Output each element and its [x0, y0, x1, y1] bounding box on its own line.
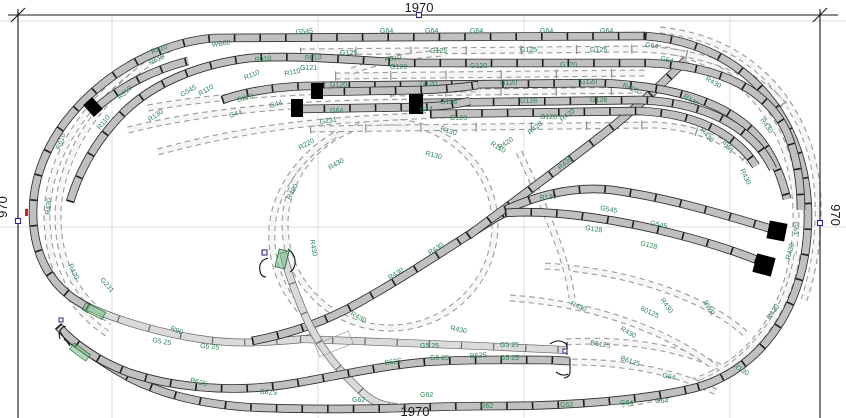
- svg-text:G128: G128: [585, 225, 603, 234]
- svg-text:G64: G64: [655, 398, 668, 405]
- svg-text:G120: G120: [500, 80, 517, 87]
- svg-text:G5 25: G5 25: [500, 342, 519, 349]
- svg-text:G125: G125: [340, 50, 357, 57]
- svg-text:G125: G125: [430, 48, 447, 55]
- svg-text:G128: G128: [640, 240, 658, 251]
- svg-text:G545: G545: [600, 205, 618, 215]
- svg-text:R430: R430: [308, 239, 318, 257]
- svg-text:G120: G120: [330, 82, 347, 89]
- svg-text:G545: G545: [296, 28, 314, 36]
- svg-text:G121: G121: [300, 65, 317, 72]
- svg-text:G128: G128: [590, 97, 607, 104]
- svg-text:G125: G125: [590, 47, 607, 54]
- svg-text:R130: R130: [424, 150, 442, 161]
- svg-text:G120: G120: [580, 79, 597, 86]
- svg-text:970: 970: [0, 196, 10, 218]
- svg-text:G64: G64: [470, 28, 483, 35]
- svg-text:B62S: B62S: [260, 389, 278, 397]
- svg-text:B62S: B62S: [470, 352, 488, 360]
- svg-text:1970: 1970: [401, 404, 430, 418]
- svg-text:R430: R430: [738, 168, 751, 186]
- svg-text:R430: R430: [45, 198, 53, 215]
- svg-text:G62: G62: [352, 397, 365, 404]
- svg-text:G5 25: G5 25: [200, 343, 220, 352]
- svg-text:G5 25: G5 25: [500, 355, 519, 362]
- svg-text:G64: G64: [380, 28, 393, 35]
- svg-text:G61: G61: [791, 222, 799, 236]
- svg-text:G5 25: G5 25: [420, 343, 439, 350]
- svg-text:G128: G128: [520, 98, 537, 105]
- svg-text:G128: G128: [440, 99, 457, 106]
- svg-text:G128: G128: [540, 114, 557, 121]
- svg-text:R430: R430: [450, 325, 468, 335]
- svg-text:G64: G64: [645, 42, 659, 50]
- svg-text:R430: R430: [619, 326, 637, 340]
- svg-text:G44: G44: [420, 106, 434, 114]
- svg-text:G64: G64: [330, 108, 343, 115]
- svg-text:R430: R430: [328, 157, 346, 171]
- svg-text:G5 25: G5 25: [152, 337, 172, 347]
- svg-text:R110: R110: [243, 69, 261, 82]
- svg-text:G62: G62: [480, 403, 493, 410]
- svg-text:G5 25: G5 25: [430, 355, 449, 362]
- svg-text:WB60: WB60: [211, 39, 231, 49]
- svg-text:1970: 1970: [405, 0, 434, 15]
- svg-text:G545: G545: [180, 84, 198, 99]
- svg-text:G62: G62: [420, 392, 433, 399]
- svg-text:G128: G128: [450, 115, 467, 122]
- svg-text:G125: G125: [520, 47, 537, 54]
- svg-text:G120: G120: [420, 81, 437, 88]
- svg-text:R130: R130: [539, 193, 556, 202]
- svg-text:R010: R010: [254, 55, 271, 64]
- svg-text:G120: G120: [470, 63, 487, 70]
- svg-text:G231: G231: [319, 117, 337, 126]
- svg-text:R010: R010: [305, 54, 322, 62]
- svg-text:R430: R430: [557, 156, 575, 172]
- svg-text:G64: G64: [425, 28, 438, 35]
- svg-text:G64: G64: [600, 28, 613, 35]
- svg-text:B6125: B6125: [590, 340, 611, 350]
- svg-text:G62: G62: [560, 402, 573, 409]
- svg-text:G64: G64: [540, 28, 553, 35]
- svg-text:R110: R110: [198, 84, 216, 98]
- svg-text:R430: R430: [658, 297, 673, 315]
- svg-text:R110: R110: [284, 68, 301, 78]
- svg-text:R430: R430: [569, 300, 587, 313]
- svg-text:970: 970: [828, 204, 843, 226]
- svg-text:60125: 60125: [639, 305, 660, 320]
- svg-text:G120: G120: [390, 64, 407, 71]
- svg-text:G120: G120: [560, 62, 577, 69]
- svg-text:G64: G64: [620, 400, 633, 407]
